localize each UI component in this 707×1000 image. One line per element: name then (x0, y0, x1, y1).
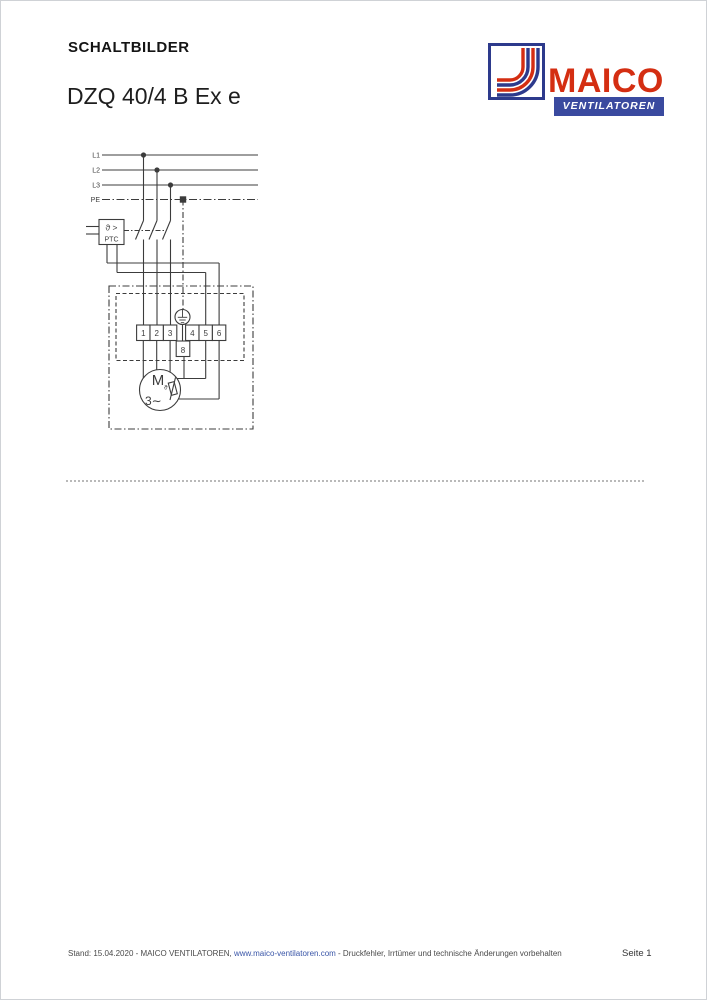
phase-label-l3: L3 (92, 183, 100, 190)
ptc-relay-label: PTC (105, 237, 119, 244)
website-link[interactable]: www.maico-ventilatoren.com (234, 949, 336, 958)
footer-imprint: Stand: 15.04.2020 - MAICO VENTILATOREN, … (68, 949, 562, 958)
maico-emblem-icon (488, 43, 545, 101)
footer-stand-suffix: - Druckfehler, Irrtümer und technische Ä… (336, 949, 562, 958)
product-title: DZQ 40/4 B Ex e (67, 83, 241, 110)
terminal-5: 5 (203, 329, 208, 338)
wiring-diagram: L1 L2 L3 PE ϑ > PTC 1 2 3 4 5 6 8 M 3∼ ϑ (81, 146, 281, 436)
motor-phase-symbol: 3∼ (145, 394, 162, 408)
terminal-4: 4 (190, 329, 195, 338)
page-number: Seite 1 (622, 948, 652, 959)
phase-label-l1: L1 (92, 153, 100, 160)
brand-tagline: VENTILATOREN (554, 97, 664, 116)
motor-label: M (152, 372, 165, 389)
terminal-1: 1 (141, 329, 146, 338)
terminal-8: 8 (181, 346, 186, 355)
dotted-divider (66, 480, 644, 482)
terminal-6: 6 (217, 329, 222, 338)
section-title: SCHALTBILDER (68, 39, 190, 56)
motor-thermistor-symbol: ϑ (164, 385, 168, 392)
document-page: SCHALTBILDER DZQ 40/4 B Ex e MAICO VENTI… (0, 0, 707, 1000)
terminal-3: 3 (168, 329, 173, 338)
ptc-relay-symbol: ϑ > (106, 223, 118, 233)
phase-label-l2: L2 (92, 168, 100, 175)
footer-stand-prefix: Stand: 15.04.2020 - MAICO VENTILATOREN, (68, 949, 234, 958)
terminal-2: 2 (154, 329, 159, 338)
brand-name: MAICO (548, 62, 664, 101)
maico-logo: MAICO VENTILATOREN (488, 41, 664, 117)
phase-label-pe: PE (91, 197, 101, 204)
